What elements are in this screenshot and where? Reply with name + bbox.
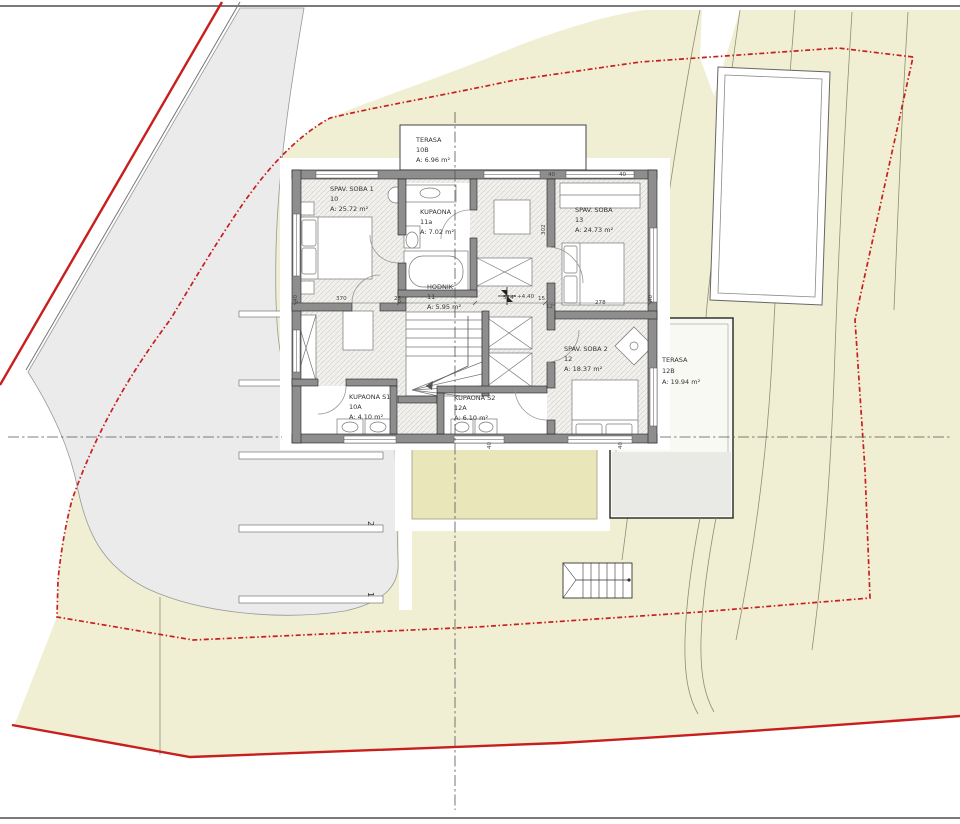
room-id: 10A xyxy=(349,403,362,411)
room-area: A: 5.95 m² xyxy=(427,303,461,311)
room-area: A: 25.72 m² xyxy=(330,205,369,213)
room-name: SPAV. SOBA xyxy=(575,206,613,214)
parking-number: 1 xyxy=(366,592,375,597)
room-name: TERASA xyxy=(415,136,442,144)
room-id: 13 xyxy=(575,216,583,224)
dimension: 40 xyxy=(293,294,299,302)
dimension: 40 xyxy=(619,172,627,178)
room-name: TERASA xyxy=(661,356,688,364)
room-area: A: 19.94 m² xyxy=(662,378,701,386)
room-id: 11 xyxy=(427,293,435,301)
level-value: +4.40 xyxy=(517,294,535,300)
dimension: 40 xyxy=(618,441,624,449)
room-area: A: 4.10 m² xyxy=(349,413,383,421)
dimension: 40 xyxy=(487,441,493,449)
room-name: HODNIK xyxy=(427,283,454,291)
room-area: A: 7.02 m² xyxy=(420,228,454,236)
room-id: 10B xyxy=(416,146,429,154)
neighbour-building xyxy=(710,67,830,305)
dimension: 15 xyxy=(538,296,546,302)
parking-divider xyxy=(239,452,383,459)
exterior-stairs xyxy=(563,563,632,598)
dimension: 25 xyxy=(394,296,402,302)
room-area: A: 18.37 m² xyxy=(564,365,603,373)
room-id: 10 xyxy=(330,195,338,203)
pillow xyxy=(576,424,602,435)
dimension: 40 xyxy=(548,172,556,178)
room-id: 12 xyxy=(564,355,572,363)
table xyxy=(494,200,530,234)
dimension: 40 xyxy=(648,294,654,302)
nightstand xyxy=(300,202,314,215)
room-name: SPAV. SOBA 2 xyxy=(564,345,608,353)
pillow xyxy=(564,246,577,273)
pillow xyxy=(606,424,632,435)
room-area: A: 24.73 m² xyxy=(575,226,614,234)
room-id: 12B xyxy=(662,367,675,375)
room-id: 12A xyxy=(454,404,467,412)
room-area: A: 6.10 m² xyxy=(454,414,488,422)
room-area: A: 6.96 m² xyxy=(416,156,450,164)
green-roof-rect xyxy=(412,447,597,519)
room-name: KUPAONA S1 xyxy=(349,393,390,401)
dimension: 302 xyxy=(541,224,547,235)
parking-divider xyxy=(239,525,383,532)
pillow xyxy=(564,276,577,303)
pillow xyxy=(302,220,316,246)
room-name: KUPAONA xyxy=(420,208,452,216)
pillow xyxy=(302,248,316,274)
room-name: SPAV. SOBA 1 xyxy=(330,185,374,193)
dimension: 12⁵ xyxy=(546,303,555,310)
parking-divider xyxy=(239,596,383,603)
desk xyxy=(343,311,373,350)
parking-number: 2 xyxy=(366,521,375,526)
nightstand xyxy=(300,281,314,294)
dimension: 278 xyxy=(595,300,606,306)
wardrobe xyxy=(560,183,640,208)
room-id: 11a xyxy=(420,218,432,226)
site-plan-canvas: 2 1 xyxy=(0,0,960,824)
dimension: 370 xyxy=(336,296,347,302)
site-plan-svg: 2 1 xyxy=(0,0,960,824)
room-name: KUPAONA S2 xyxy=(454,394,495,402)
